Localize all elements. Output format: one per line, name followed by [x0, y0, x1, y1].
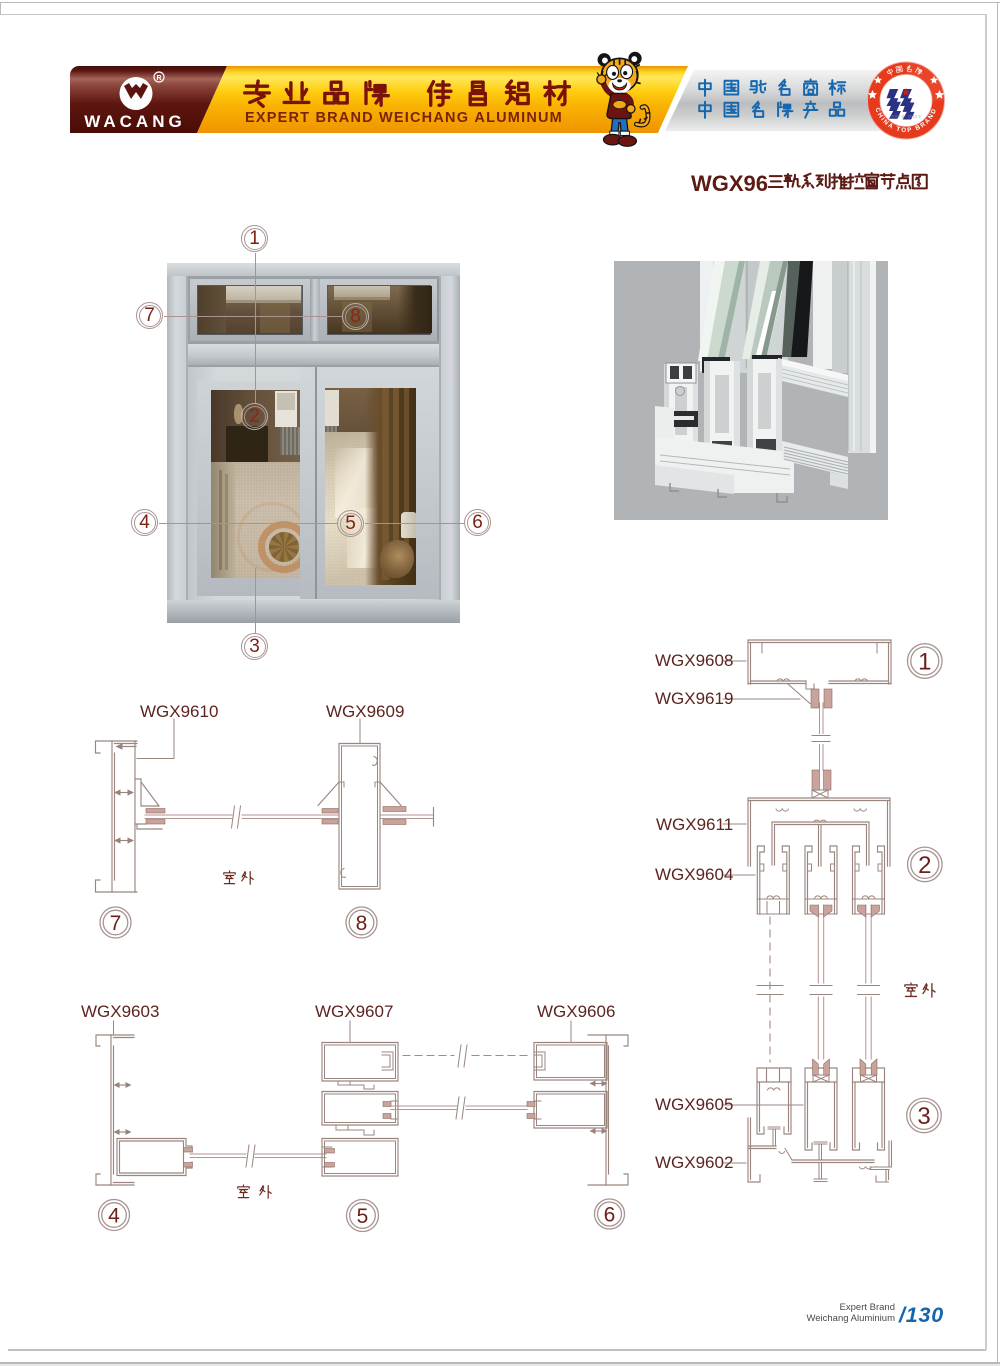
svg-text:WGX9603: WGX9603 [81, 1002, 159, 1021]
svg-text:WGX96: WGX96 [691, 171, 768, 196]
svg-text:WGX9605: WGX9605 [655, 1095, 733, 1114]
svg-text:4: 4 [108, 1205, 120, 1228]
svg-text:WGX9607: WGX9607 [315, 1002, 393, 1021]
svg-text:WGX9604: WGX9604 [655, 865, 733, 884]
svg-text:3: 3 [917, 1103, 930, 1130]
svg-text:WGX9611: WGX9611 [656, 815, 733, 834]
svg-text:6: 6 [604, 1204, 616, 1227]
svg-text:8: 8 [356, 912, 368, 935]
svg-text:R: R [156, 75, 161, 82]
svg-text:1: 1 [918, 649, 931, 676]
svg-text:2: 2 [918, 852, 931, 879]
svg-text:WGX9610: WGX9610 [140, 702, 218, 721]
svg-text:5: 5 [357, 1205, 369, 1228]
svg-text:7: 7 [110, 912, 122, 935]
svg-text:2007.9 - 2012.9: 2007.9 - 2012.9 [891, 115, 921, 119]
svg-text:WGX9609: WGX9609 [326, 702, 404, 721]
svg-text:WGX9602: WGX9602 [655, 1153, 733, 1172]
svg-text:WGX9619: WGX9619 [655, 689, 733, 708]
svg-text:WGX9606: WGX9606 [537, 1002, 615, 1021]
svg-text:WGX9608: WGX9608 [655, 651, 733, 670]
